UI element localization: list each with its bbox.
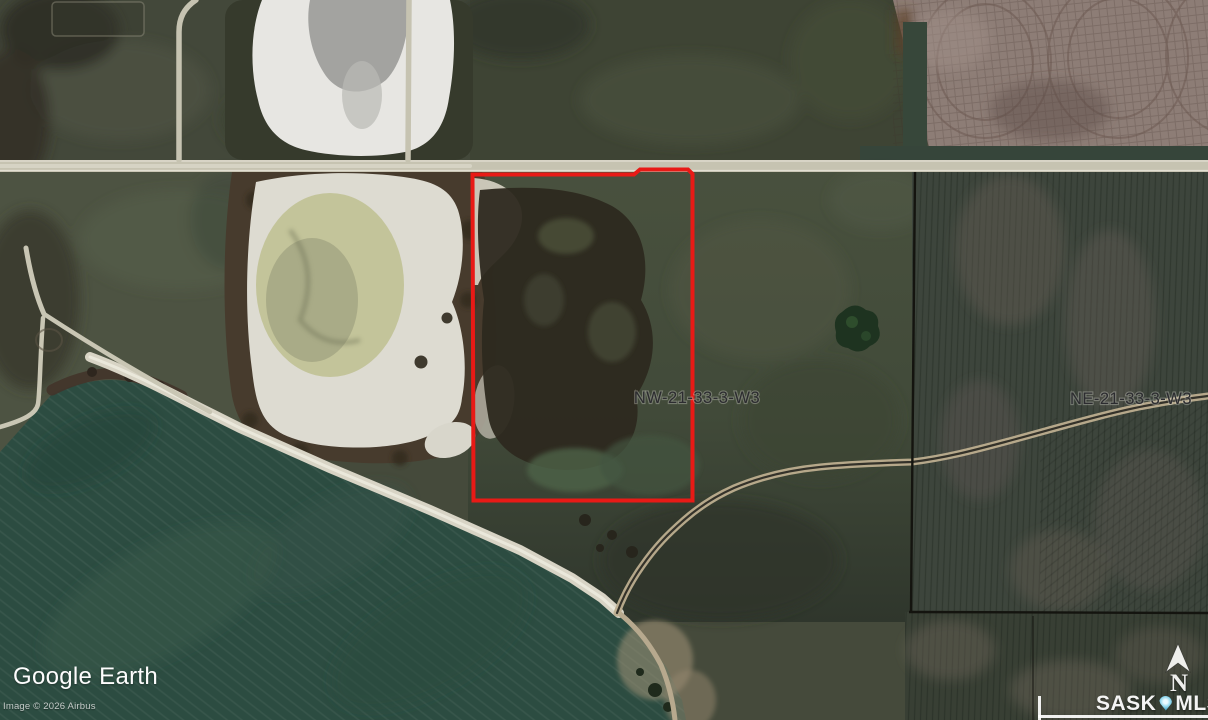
google-earth-logo: Google Earth (13, 663, 158, 691)
compass-north-indicator: N (1158, 640, 1200, 698)
google-earth-logo-text: Google Earth (13, 663, 158, 690)
mls-brand-prefix: SASK (1096, 692, 1156, 716)
parcel-label-ne: NE-21-33-3-W3 (1070, 390, 1192, 408)
parcel-label-nw: NW-21-33-3-W3 (634, 389, 760, 407)
google-earth-screenshot: NW-21-33-3-W3 NE-21-33-3-W3 Google Earth… (0, 0, 1208, 720)
compass-north-label: N (1158, 670, 1200, 698)
imagery-credit: Image © 2026 Airbus (3, 701, 96, 712)
satellite-map: NW-21-33-3-W3 NE-21-33-3-W3 (0, 0, 1208, 720)
